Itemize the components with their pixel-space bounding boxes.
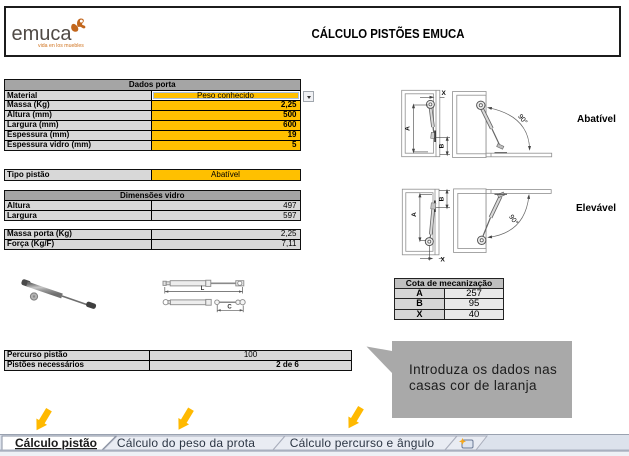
svg-text:B: B: [439, 143, 446, 148]
svg-text:90°: 90°: [516, 113, 529, 126]
svg-text:Cálculo pistão: Cálculo pistão: [15, 436, 97, 450]
svg-text:L: L: [201, 286, 205, 292]
svg-text:Cálculo percurso e ângulo: Cálculo percurso e ângulo: [290, 436, 435, 450]
svg-text:X: X: [442, 90, 447, 97]
svg-text:A: A: [405, 126, 412, 131]
svg-text:A: A: [411, 212, 418, 217]
svg-text:X: X: [441, 257, 446, 264]
svg-text:90°: 90°: [507, 213, 520, 226]
svg-text:C: C: [227, 305, 232, 311]
svg-text:Cálculo do peso da prota: Cálculo do peso da prota: [117, 436, 255, 450]
svg-text:B: B: [438, 196, 445, 201]
